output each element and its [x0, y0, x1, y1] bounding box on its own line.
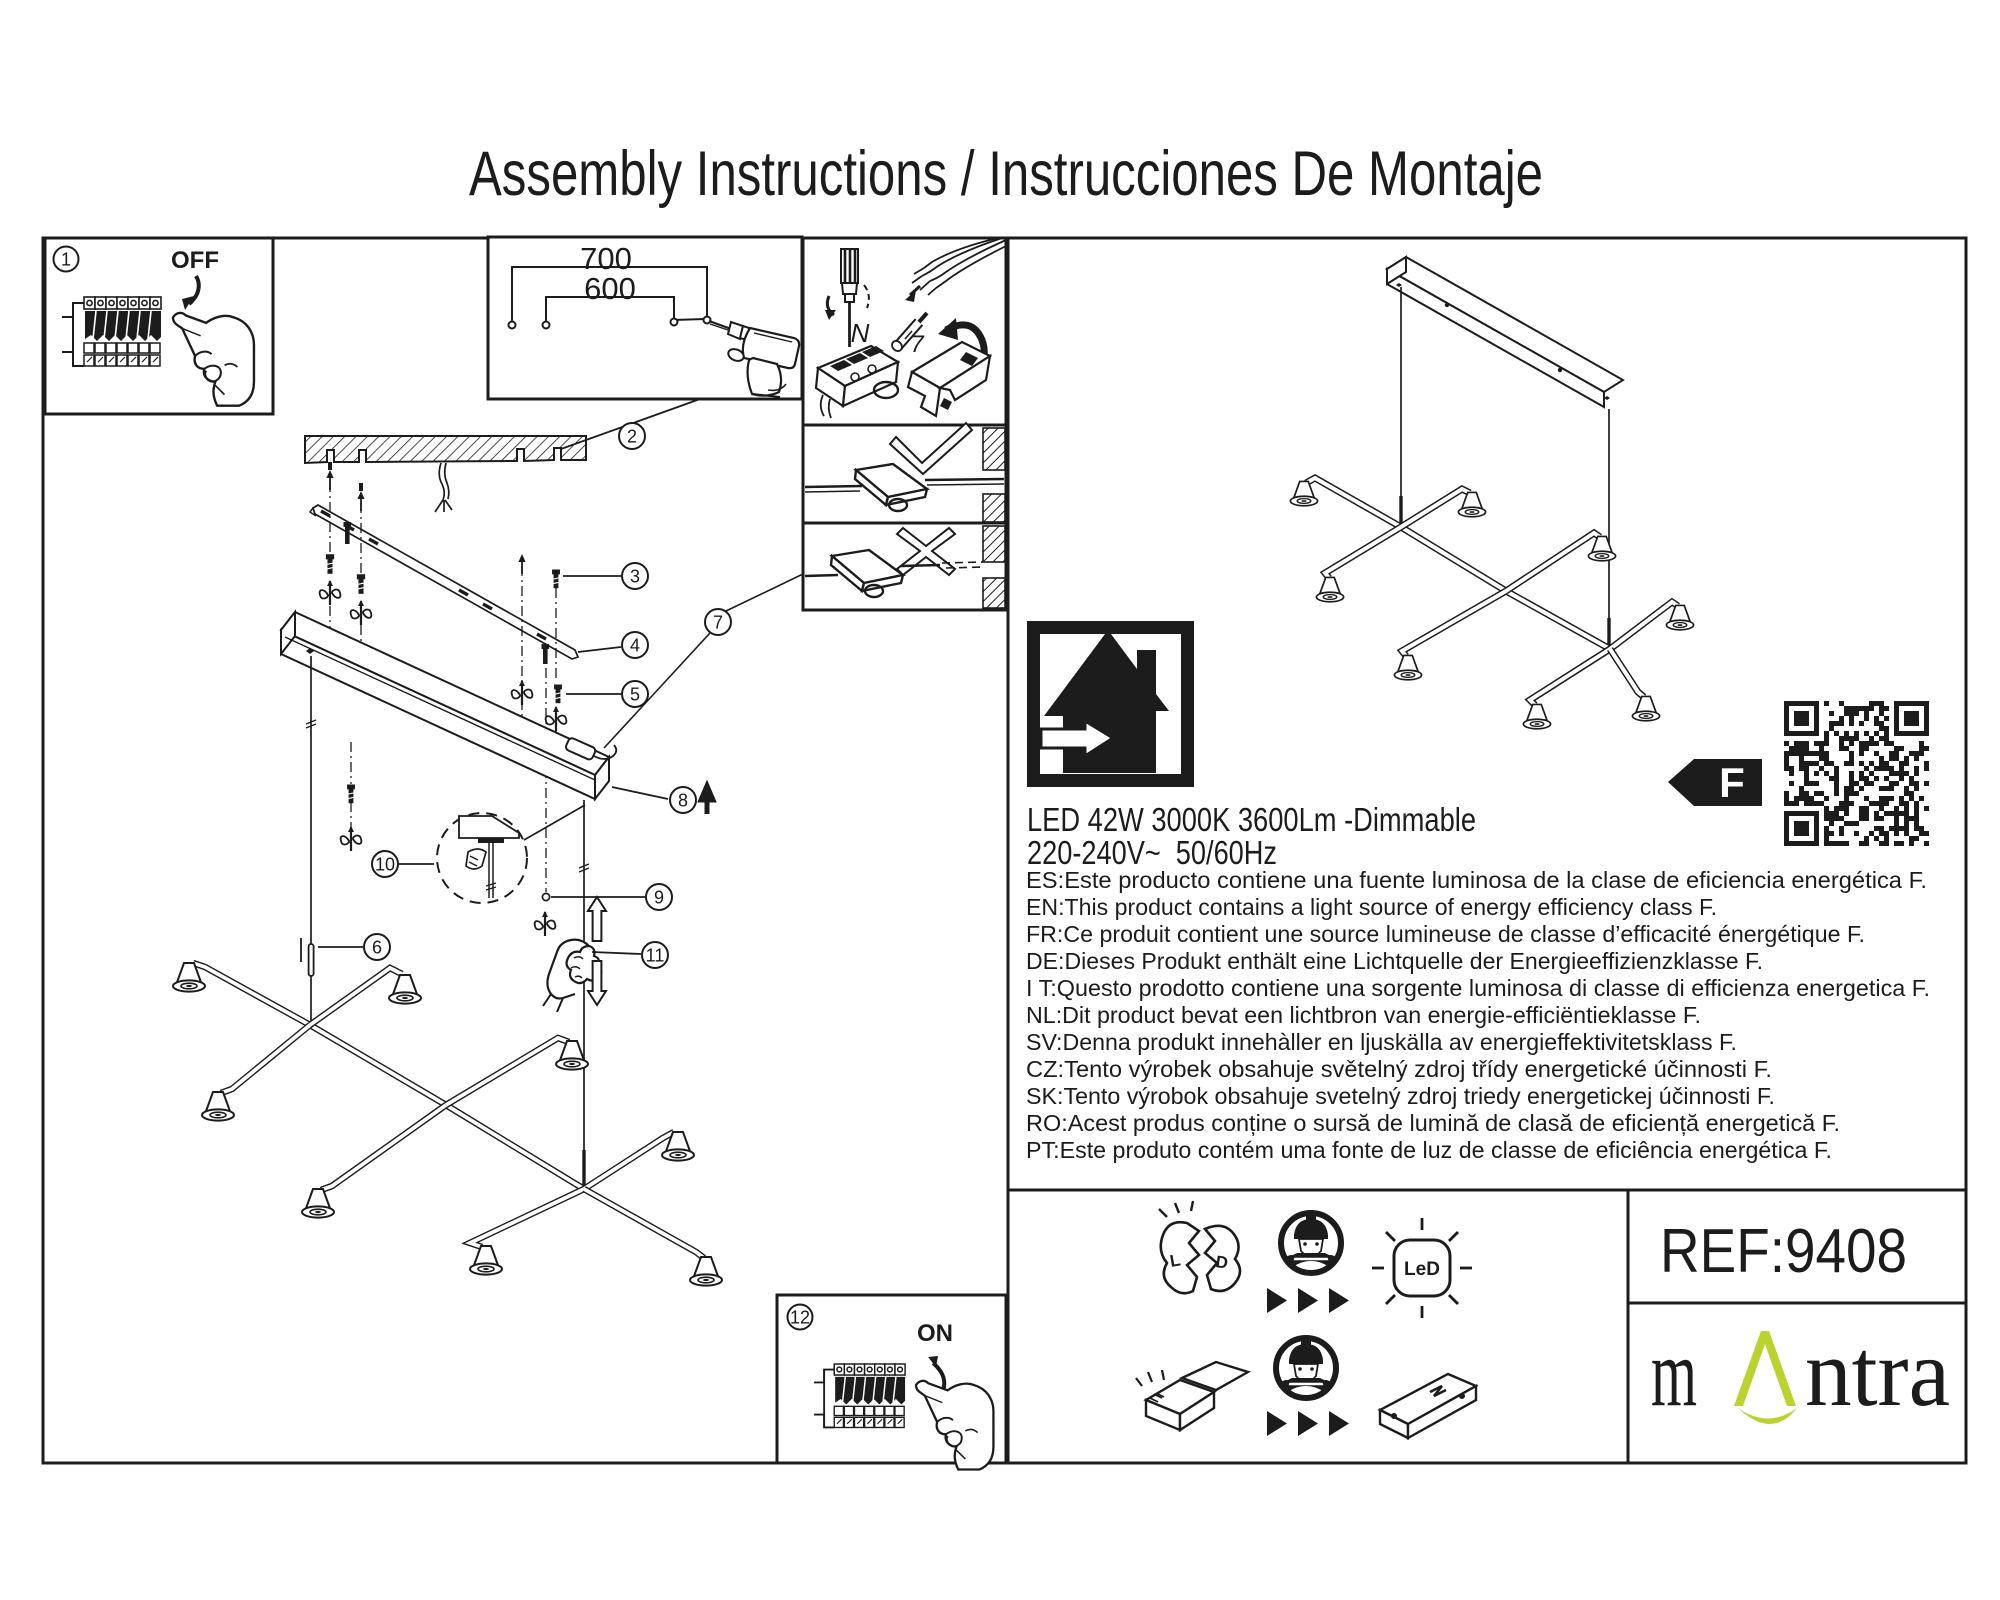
svg-text:OFF: OFF	[171, 247, 219, 274]
svg-text:ON: ON	[917, 1320, 953, 1347]
svg-text:7: 7	[910, 331, 925, 358]
svg-text:LeD: LeD	[1404, 1259, 1440, 1280]
svg-text:600: 600	[584, 271, 636, 306]
svg-text:ntra: ntra	[1805, 1319, 1950, 1426]
svg-text:DE:Dieses Produkt enthält eine: DE:Dieses Produkt enthält eine Lichtquel…	[1026, 948, 1763, 974]
svg-text:F: F	[1719, 759, 1745, 806]
svg-text:2: 2	[627, 427, 637, 447]
svg-text:RO:Acest produs conține o surs: RO:Acest produs conține o sursă de lumin…	[1026, 1110, 1840, 1136]
svg-text:Assembly Instructions / Instru: Assembly Instructions / Instrucciones De…	[469, 139, 1543, 209]
svg-text:EN:This product contains a lig: EN:This product contains a light source …	[1026, 894, 1717, 920]
svg-text:LED 42W 3000K 3600Lm -Dimmable: LED 42W 3000K 3600Lm -Dimmable	[1027, 801, 1476, 838]
svg-text:D: D	[1214, 1252, 1229, 1273]
svg-text:11: 11	[646, 946, 665, 966]
svg-text:REF:9408: REF:9408	[1660, 1217, 1907, 1286]
svg-text:10: 10	[375, 855, 395, 875]
svg-text:7: 7	[713, 613, 723, 633]
svg-text:12: 12	[790, 1308, 810, 1328]
svg-text:PT:Este produto contém uma fon: PT:Este produto contém uma fonte de luz …	[1026, 1137, 1832, 1163]
svg-text:6: 6	[372, 938, 382, 958]
svg-text:CZ:Tento výrobek obsahuje svět: CZ:Tento výrobek obsahuje světelný zdroj…	[1026, 1056, 1772, 1082]
svg-text:8: 8	[678, 791, 688, 811]
svg-text:5: 5	[630, 685, 640, 705]
svg-text:220-240V~ 50/60Hz: 220-240V~ 50/60Hz	[1027, 834, 1277, 871]
svg-text:9: 9	[654, 888, 664, 908]
svg-text:FR:Ce produit contient une sou: FR:Ce produit contient une source lumine…	[1026, 921, 1865, 947]
svg-text:4: 4	[630, 636, 640, 656]
svg-text:m: m	[1651, 1319, 1697, 1426]
svg-text:3: 3	[630, 567, 640, 587]
svg-text:NL:Dit product bevat een licht: NL:Dit product bevat een lichtbron van e…	[1026, 1002, 1701, 1028]
svg-text:ES:Este producto contiene una: ES:Este producto contiene una fuente lum…	[1026, 867, 1927, 893]
svg-text:N: N	[851, 318, 870, 348]
svg-text:SV:Denna produkt innehàller en: SV:Denna produkt innehàller en ljuskälla…	[1026, 1029, 1737, 1055]
svg-text:SK:Tento výrobok obsahuje svet: SK:Tento výrobok obsahuje svetelný zdroj…	[1026, 1083, 1775, 1109]
svg-text:I T:Questo prodotto contiene u: I T:Questo prodotto contiene una sorgent…	[1026, 975, 1930, 1001]
svg-text:1: 1	[61, 250, 71, 270]
